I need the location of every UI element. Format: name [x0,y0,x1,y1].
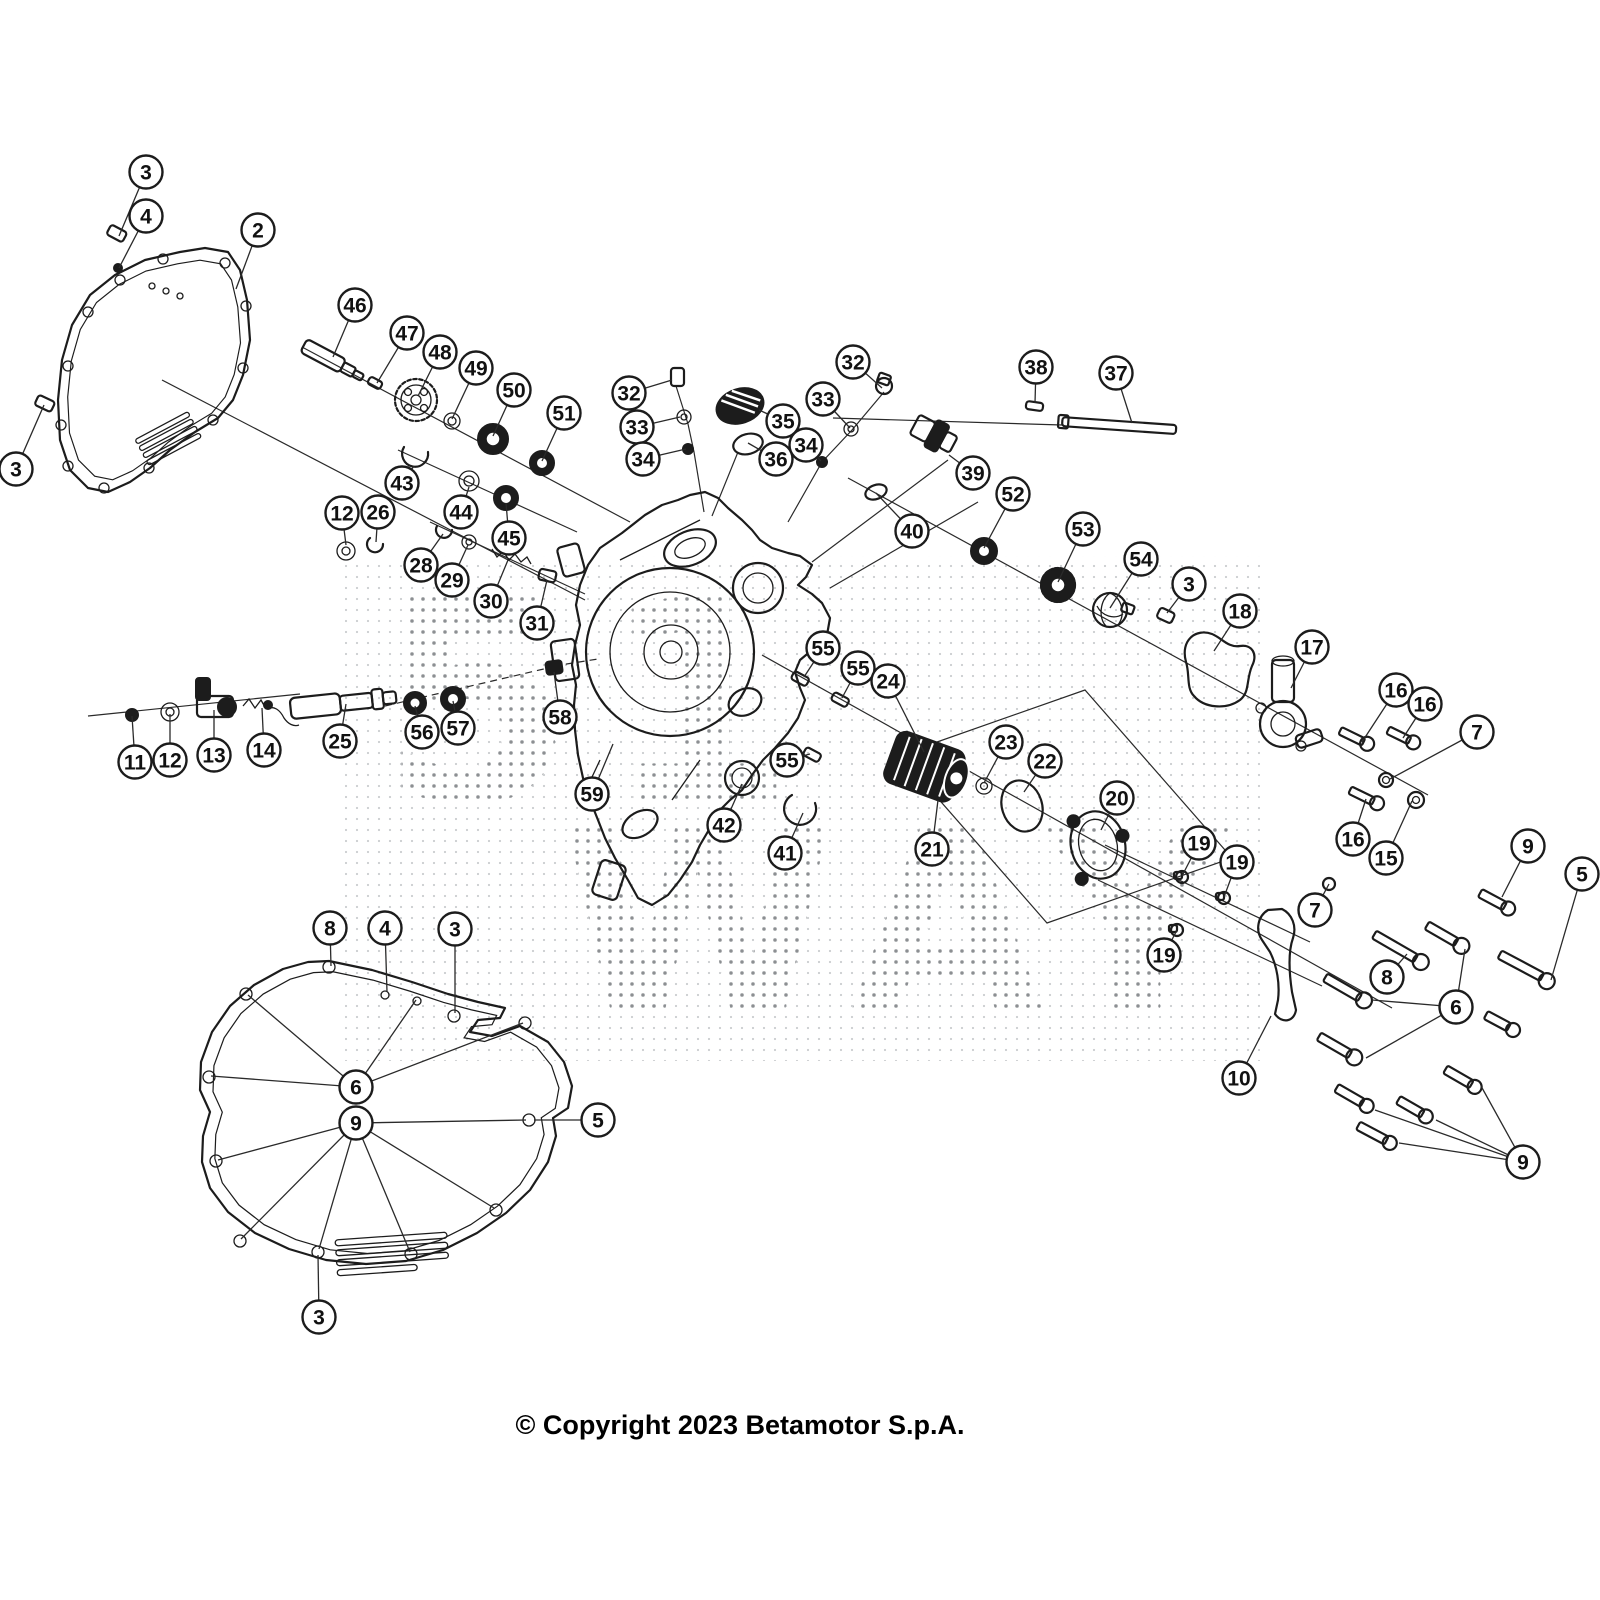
callout-28: 28 [405,549,438,582]
callout-16: 16 [1337,823,1370,856]
callout-9: 9 [1512,830,1545,863]
callout-36: 36 [760,443,793,476]
callout-50: 50 [498,374,531,407]
cover-bolts-group [1315,887,1558,1152]
callout-13: 13 [198,739,231,772]
callout-26: 26 [362,496,395,529]
callout-24: 24 [872,665,905,698]
callout-44: 44 [445,496,478,529]
callout-number-34: 34 [794,435,818,458]
callout-55: 55 [771,744,804,777]
callout-5: 5 [582,1104,615,1137]
callout-6: 6 [1440,991,1473,1024]
callout-number-55: 55 [846,658,870,681]
callout-number-19: 19 [1225,852,1248,875]
parts-diagram-page: { "copyright": "© Copyright 2023 Betamot… [0,0,1600,1600]
callout-25: 25 [324,725,357,758]
callout-number-32: 32 [617,383,640,406]
callout-21: 21 [916,833,949,866]
callout-29: 29 [436,564,469,597]
callout-4: 4 [369,912,402,945]
callout-3: 3 [130,156,163,189]
callout-number-33: 33 [625,417,648,440]
callout-number-18: 18 [1228,601,1252,624]
callout-number-15: 15 [1374,848,1398,871]
callout-number-21: 21 [920,839,944,862]
callout-number-16: 16 [1384,680,1407,703]
gear-50 [478,424,508,454]
callout-12: 12 [154,744,187,777]
callout-number-38: 38 [1024,357,1048,380]
callout-48: 48 [424,336,457,369]
callout-number-30: 30 [479,591,502,614]
callout-33: 33 [621,411,654,444]
callout-number-14: 14 [252,740,276,763]
callout-number-8: 8 [324,918,336,941]
callout-11: 11 [119,746,152,779]
callout-37: 37 [1100,357,1133,390]
callout-9: 9 [1507,1146,1540,1179]
callout-number-51: 51 [552,403,576,426]
breather-rod-37 [1058,415,1177,436]
callout-number-9: 9 [1522,836,1534,859]
callout-34: 34 [790,429,823,462]
callout-number-59: 59 [580,784,603,807]
callout-5: 5 [1566,858,1599,891]
callout-55: 55 [807,632,840,665]
callout-number-53: 53 [1071,519,1094,542]
shaft-46 [300,339,366,384]
callout-31: 31 [521,607,554,640]
callout-number-28: 28 [409,555,433,578]
callout-number-4: 4 [379,918,391,941]
callout-number-23: 23 [994,732,1017,755]
o-ring-40 [863,482,888,503]
callout-55: 55 [842,652,875,685]
callout-number-33: 33 [811,389,834,412]
callout-7: 7 [1299,894,1332,927]
seal-51 [530,451,554,475]
callout-number-3: 3 [313,1307,325,1330]
callout-number-9: 9 [350,1113,362,1136]
screw-and-ball-top-left [34,224,127,412]
callout-number-12: 12 [158,750,181,773]
callout-47: 47 [391,317,424,350]
callout-number-31: 31 [525,613,549,636]
fitting-39 [908,411,961,458]
callout-number-7: 7 [1309,900,1321,923]
callout-number-58: 58 [548,707,572,730]
callout-53: 53 [1067,513,1100,546]
callout-15: 15 [1370,842,1403,875]
callout-23: 23 [990,726,1023,759]
callout-number-12: 12 [330,503,353,526]
callout-number-4: 4 [140,206,152,229]
callout-9: 9 [340,1107,373,1140]
callout-number-20: 20 [1105,788,1128,811]
leader-line-9 [218,1123,356,1160]
callout-19: 19 [1221,846,1254,879]
callout-22: 22 [1029,745,1062,778]
callout-number-9: 9 [1517,1152,1529,1175]
callout-51: 51 [548,397,581,430]
callout-34: 34 [627,443,660,476]
callout-52: 52 [997,478,1030,511]
callout-3: 3 [0,453,33,486]
callout-14: 14 [248,734,281,767]
callout-39: 39 [957,457,990,490]
callout-number-48: 48 [428,342,452,365]
callout-number-39: 39 [961,463,984,486]
callout-number-36: 36 [764,449,787,472]
snap-ring-43 [402,447,428,467]
callout-42: 42 [708,809,741,842]
callout-number-42: 42 [712,815,735,838]
callout-number-5: 5 [592,1110,604,1133]
gear-48 [395,379,437,421]
callout-18: 18 [1224,595,1257,628]
callout-19: 19 [1183,827,1216,860]
bearing-57 [441,687,465,711]
callout-number-34: 34 [631,449,655,472]
callout-number-8: 8 [1381,967,1393,990]
leader-line-6 [248,995,356,1087]
callout-32: 32 [837,346,870,379]
nut-7-top [1379,773,1393,787]
callout-number-44: 44 [449,502,473,525]
watermark-row-2: WAY [560,778,1253,1069]
screw-32-left [671,368,684,386]
callout-12: 12 [326,497,359,530]
water-pump-17 [1256,656,1324,751]
callout-46: 46 [339,289,372,322]
callout-20: 20 [1101,782,1134,815]
callout-number-13: 13 [202,745,225,768]
callout-number-52: 52 [1001,484,1024,507]
callout-56: 56 [406,716,439,749]
callout-number-26: 26 [366,502,389,525]
callout-number-50: 50 [502,380,525,403]
callout-number-3: 3 [140,162,152,185]
callout-number-55: 55 [775,750,799,773]
callout-number-3: 3 [10,459,22,482]
callout-number-3: 3 [1183,574,1195,597]
bearing-56 [404,692,426,714]
lever-13 [196,678,236,717]
callout-30: 30 [475,585,508,618]
callout-number-57: 57 [446,718,469,741]
callout-2: 2 [242,214,275,247]
callout-45: 45 [493,522,526,555]
callout-8: 8 [314,912,347,945]
callout-number-11: 11 [124,752,147,775]
callout-number-56: 56 [410,722,433,745]
callout-10: 10 [1223,1062,1256,1095]
callout-58: 58 [544,701,577,734]
callout-number-19: 19 [1152,945,1175,968]
leader-line-9 [1375,1110,1523,1162]
callout-41: 41 [769,837,802,870]
callout-number-2: 2 [252,220,264,243]
callout-number-47: 47 [395,323,418,346]
clutch-cover-gasket-top [56,248,251,493]
callout-3: 3 [303,1301,336,1334]
callout-number-32: 32 [841,352,864,375]
oil-filler-cap-35 [712,382,768,429]
callout-59: 59 [576,778,609,811]
callout-number-46: 46 [343,295,366,318]
callout-number-24: 24 [876,671,900,694]
callout-40: 40 [896,515,929,548]
callout-number-6: 6 [1450,997,1462,1020]
callout-number-16: 16 [1341,829,1364,852]
callout-number-45: 45 [497,528,521,551]
callout-number-41: 41 [773,843,797,866]
callout-number-6: 6 [350,1077,362,1100]
callout-17: 17 [1296,631,1329,664]
callout-number-17: 17 [1300,637,1323,660]
callout-number-5: 5 [1576,864,1588,887]
callout-number-49: 49 [464,358,487,381]
callout-6: 6 [340,1071,373,1104]
callout-19: 19 [1148,939,1181,972]
callout-number-43: 43 [390,473,413,496]
callout-38: 38 [1020,351,1053,384]
callout-number-10: 10 [1227,1068,1250,1091]
copyright-text: © Copyright 2023 Betamotor S.p.A. [516,1410,965,1441]
callout-number-22: 22 [1033,751,1056,774]
exploded-diagram-canvas: 51 WAY [0,0,1600,1600]
callout-number-29: 29 [440,570,463,593]
callout-number-3: 3 [449,919,461,942]
callout-number-19: 19 [1187,833,1210,856]
callout-number-7: 7 [1471,722,1483,745]
callout-33: 33 [807,383,840,416]
callout-7: 7 [1461,716,1494,749]
gasket-top-rib-slots [135,412,202,466]
callout-number-54: 54 [1129,549,1153,572]
seal-52 [971,538,997,564]
snap-ring-28 [436,526,452,538]
callout-4: 4 [130,200,163,233]
callout-3: 3 [1173,568,1206,601]
callout-number-16: 16 [1413,694,1436,717]
callout-3: 3 [439,913,472,946]
callout-16: 16 [1409,688,1442,721]
callout-8: 8 [1371,961,1404,994]
callout-number-37: 37 [1104,363,1127,386]
callout-32: 32 [613,377,646,410]
callout-number-25: 25 [328,731,352,754]
leader-line-9 [356,1120,526,1123]
callout-49: 49 [460,352,493,385]
leader-line-9 [356,1123,410,1252]
callout-57: 57 [442,712,475,745]
callout-number-40: 40 [900,521,923,544]
callout-43: 43 [386,467,419,500]
callout-54: 54 [1125,543,1158,576]
callout-number-55: 55 [811,638,835,661]
leader-line-6 [211,1076,356,1087]
pump-gear-53 [1041,568,1075,602]
leader-line-9 [356,1123,494,1208]
callout-number-35: 35 [771,411,795,434]
